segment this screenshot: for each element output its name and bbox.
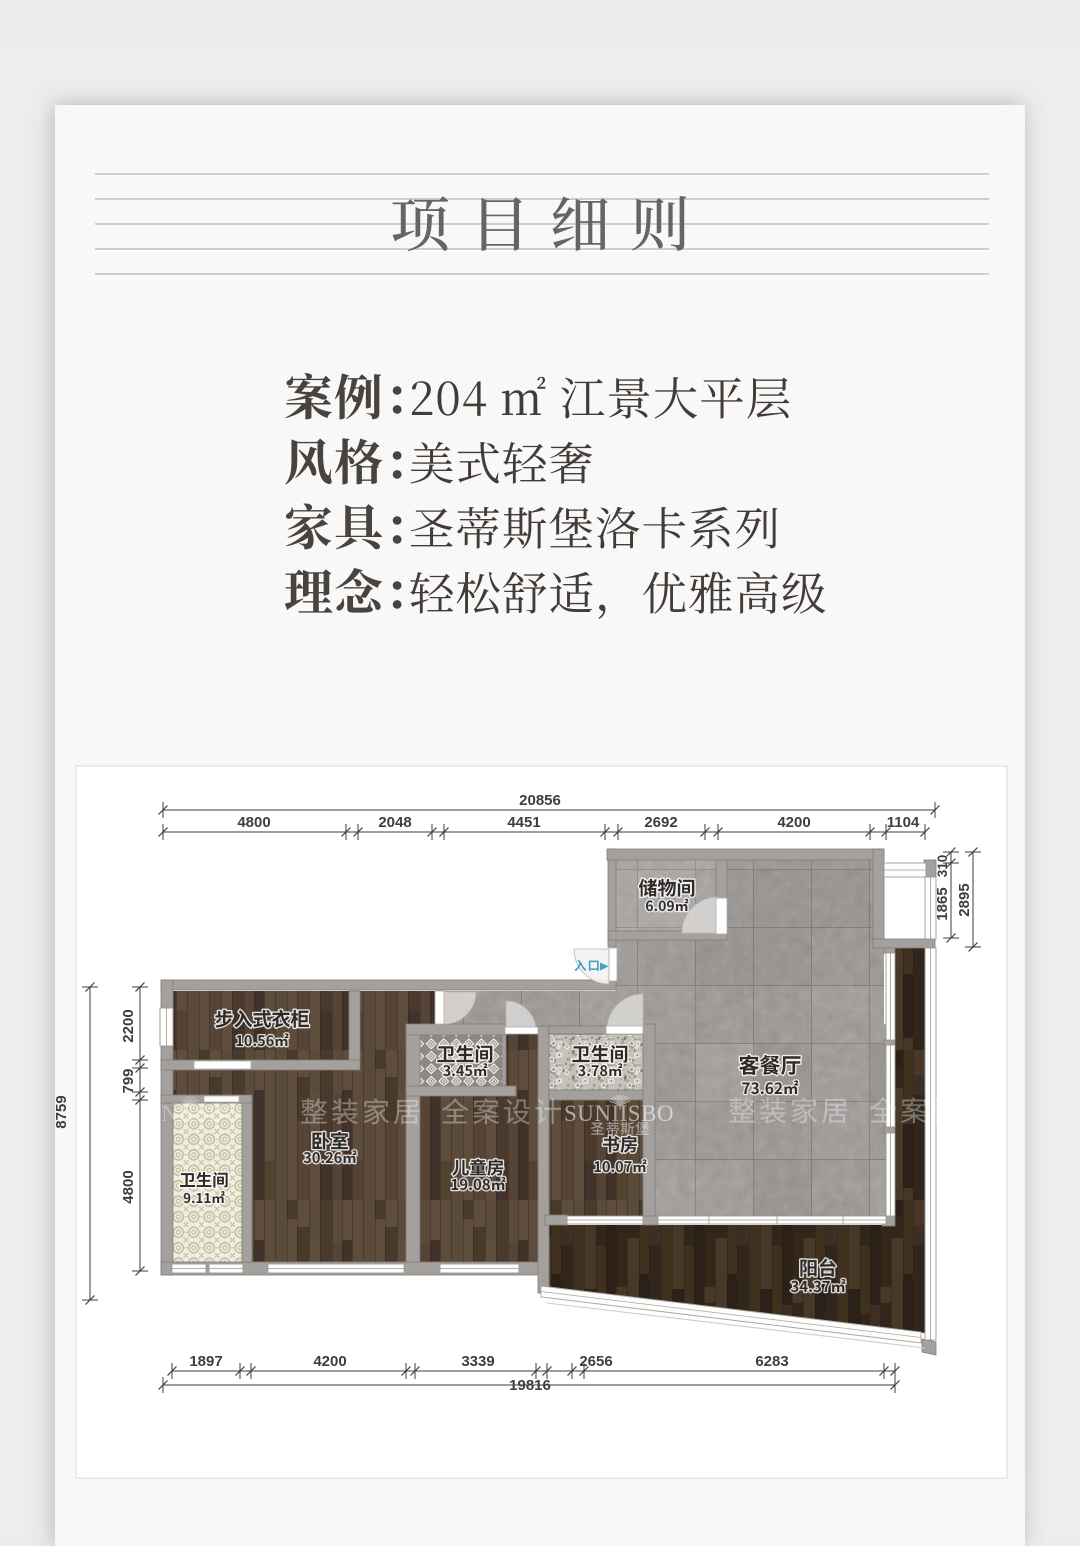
svg-text:6283: 6283 [755,1353,788,1370]
svg-text:799: 799 [120,1068,137,1093]
svg-text:20856: 20856 [519,792,561,809]
svg-text:4800: 4800 [120,1170,137,1203]
svg-text:4200: 4200 [313,1353,346,1370]
svg-text:2200: 2200 [120,1009,137,1042]
svg-text:19816: 19816 [509,1377,551,1394]
svg-text:2656: 2656 [579,1353,612,1370]
svg-text:1897: 1897 [189,1353,222,1370]
svg-text:4200: 4200 [777,814,810,831]
svg-text:2692: 2692 [644,814,677,831]
svg-text:SUNIISBO: SUNIISBO [564,1101,674,1126]
svg-text:2895: 2895 [956,883,973,916]
svg-text:SUNIISBO: SUNIISBO [131,1101,241,1126]
svg-text:4451: 4451 [507,814,540,831]
svg-text:8759: 8759 [53,1095,70,1128]
svg-text:1865: 1865 [934,887,951,920]
svg-text:1104: 1104 [887,814,920,831]
svg-text:2048: 2048 [378,814,411,831]
svg-text:3339: 3339 [461,1353,494,1370]
svg-text:4800: 4800 [237,814,270,831]
svg-text:310: 310 [935,855,950,878]
